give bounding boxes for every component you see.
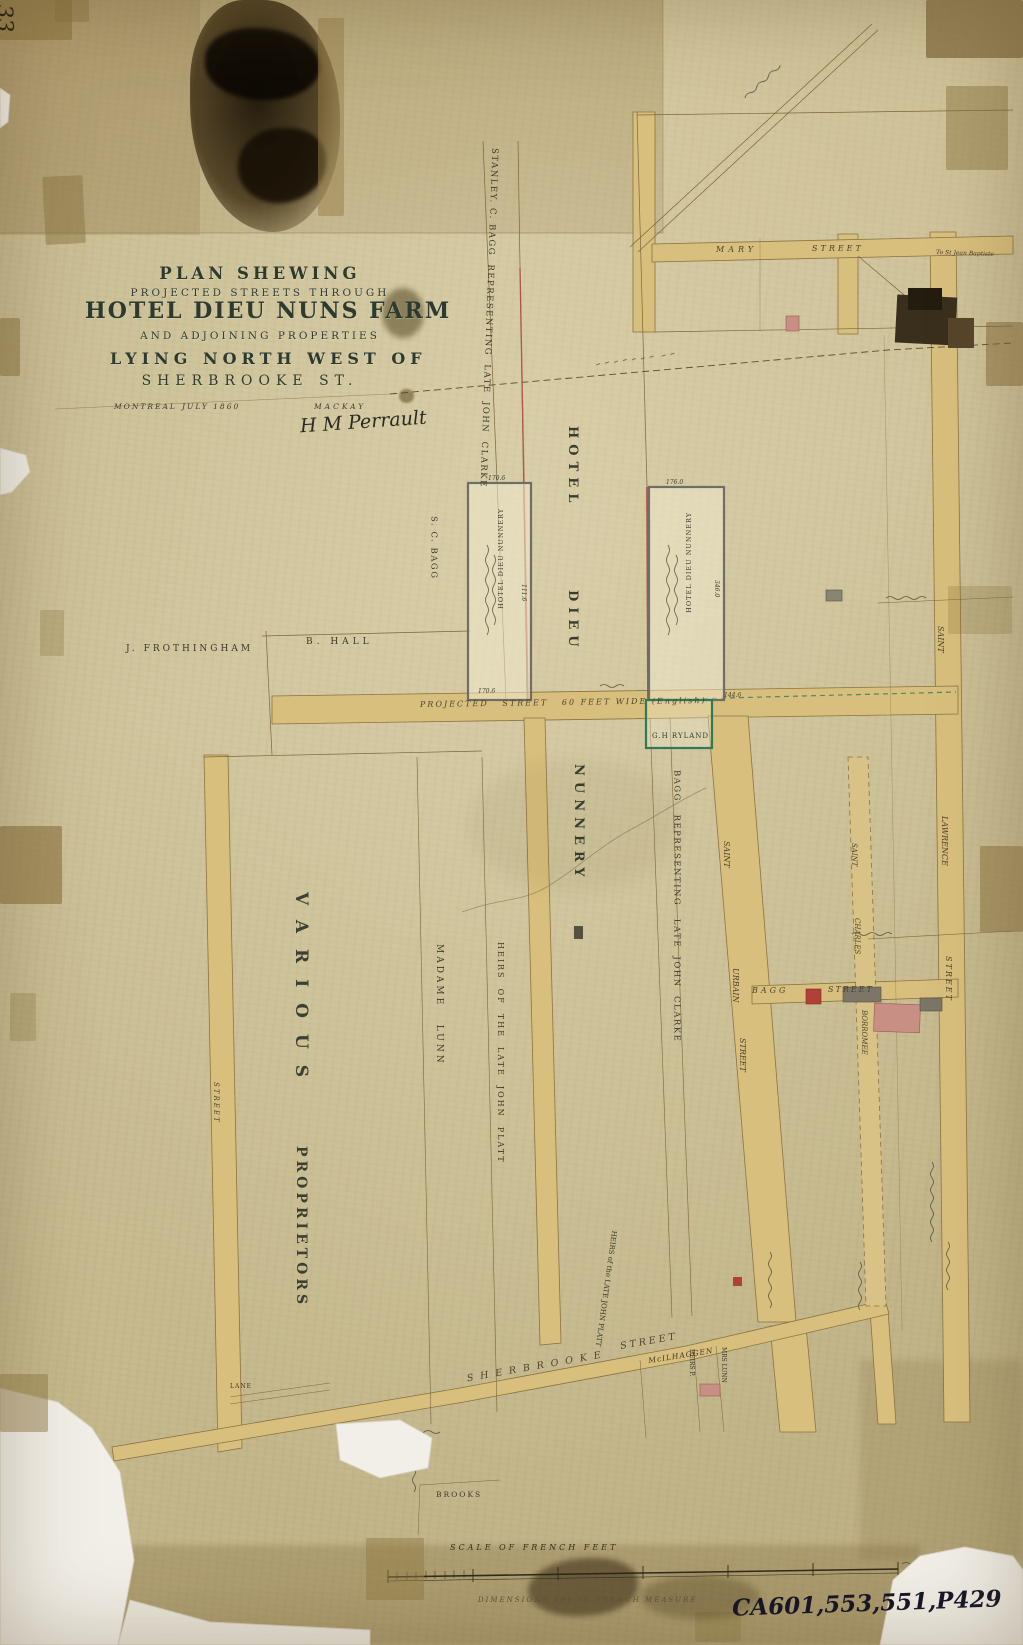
tape-patch [10, 993, 36, 1041]
owner-heirs-platt-2: HEIRS of the LATE JOHN PLATT [594, 1230, 617, 1347]
map-title-line6: SHERBROOKE ST. [130, 374, 370, 388]
bagg-street-label-1: BAGG [752, 987, 788, 995]
lane-label: LANE [230, 1384, 252, 1390]
st-urbain-word2: URBAIN [731, 968, 739, 1003]
owner-frothingham: J. FROTHINGHAM [126, 645, 253, 654]
hotel-dieu-word-nunnery: NUNNERY [572, 764, 585, 883]
various-proprietors-word1: VARIOUS [292, 892, 309, 1093]
map-title-line2: PROJECTED STREETS THROUGH [120, 288, 400, 299]
hotel-dieu-word-dieu: DIEU [566, 590, 579, 653]
parcel1-dim-bottom: 170.6 [478, 689, 495, 695]
parcel2-dim-top: 176.0 [666, 480, 683, 486]
tape-patch [42, 175, 86, 245]
parcel1-dim-top: 170.6 [488, 476, 505, 482]
scale-title: SCALE OF FRENCH FEET [450, 1544, 618, 1552]
surveyor-signature: H M Perrault [299, 409, 427, 437]
parcel2-name: HOTEL DIEU NUNNERY [686, 512, 693, 613]
owner-heirs-platt: HEIRS OF THE LATE JOHN PLATT [496, 942, 504, 1164]
scale-note: DIMENSIONS ARE IN FRENCH MEASURE [478, 1597, 697, 1604]
tape-patch [318, 18, 344, 216]
bagg-street-label-2: STREET [828, 986, 874, 994]
owner-madame-lunn: MADAME LUNN [434, 944, 443, 1066]
tape-patch [0, 826, 62, 904]
map-city: MONTREAL [114, 403, 177, 411]
map-title-line3: HOTEL DIEU NUNS FARM [85, 300, 425, 322]
owner-b-hall: B. HALL [306, 638, 373, 647]
owner-sc-bagg: S. C. BAGG [429, 516, 438, 580]
st-charles-word1: SAINT [850, 843, 857, 866]
parcel1-dim-side: 111.6 [520, 584, 526, 601]
stain-bottom-center [528, 1558, 638, 1616]
mary-street-label-1: MARY [716, 246, 757, 254]
tape-patch [40, 610, 64, 656]
owner-gh-ryland: G.H RYLAND [652, 733, 709, 740]
tape-patch [948, 586, 1012, 634]
parcel1-name: HOTEL DIEU NUNNERY [498, 508, 505, 609]
map-title-line5: LYING NORTH WEST OF [110, 351, 410, 367]
various-proprietors-word2: PROPRIETORS [294, 1146, 308, 1308]
owner-bagg-clarke: BAGG REPRESENTING LATE JOHN CLARKE [672, 770, 681, 1042]
st-urbain-word1: SAINT [722, 841, 730, 868]
parcel2-dim-side: 346.0 [713, 580, 719, 597]
owner-heirs-p: HEIRS P. [688, 1349, 694, 1376]
owner-brooks: BROOKS [436, 1491, 482, 1499]
tape-patch [0, 318, 20, 376]
tape-patch [55, 0, 89, 22]
owner-mrs-lunn: MRS LUNN [720, 1347, 726, 1383]
owner-mcilhaggen: McILHAGGEN [648, 1347, 714, 1365]
st-lawrence-word3: STREET [944, 956, 952, 1002]
left-street-label: STREET [212, 1082, 219, 1124]
parcel2-dim-bottom: 144.6 [724, 693, 741, 699]
to-st-jean-note: To St Jean Baptiste [936, 250, 994, 258]
tape-patch [366, 1538, 424, 1600]
surveyor-name: MACKAY [314, 403, 366, 411]
tape-patch [980, 846, 1023, 932]
corner-number: 33 [0, 4, 15, 33]
map-sheet: 33 PLAN SHEWING PROJECTED STREETS THROUG… [0, 0, 1023, 1645]
st-charles-word3: BORROMEE [860, 1010, 867, 1055]
map-title-line4: AND ADJOINING PROPERTIES [120, 331, 400, 342]
mary-street-label-2: STREET [812, 245, 864, 253]
tape-patch [946, 86, 1008, 170]
map-title-line1: PLAN SHEWING [120, 266, 400, 283]
sherbrooke-street-label-2: STREET [620, 1332, 679, 1351]
bottom-right-tone [860, 1360, 1023, 1560]
st-urbain-word3: STREET [738, 1038, 746, 1072]
tape-patch [0, 1374, 48, 1432]
owner-stanley-bagg-clarke: STANLEY. C. BAGG REPRESENTING LATE JOHN … [478, 148, 498, 488]
tape-patch [926, 0, 1023, 58]
st-charles-word2: CHARLES [853, 918, 860, 954]
projected-street-label: PROJECTED STREET 60 FEET WIDE (English) [420, 697, 707, 709]
map-date: JULY 1860 [182, 403, 240, 411]
hotel-dieu-word-hotel: HOTEL [566, 426, 579, 508]
st-lawrence-word2: LAWRENCE [940, 816, 948, 866]
catalog-number: CA601,553,551,P429 [732, 1587, 1002, 1619]
stain-dot [399, 389, 414, 403]
sherbrooke-street-label-1: SHERBROOKE [466, 1350, 608, 1384]
tape-patch [986, 322, 1023, 386]
st-lawrence-word1: SAINT [936, 626, 944, 653]
